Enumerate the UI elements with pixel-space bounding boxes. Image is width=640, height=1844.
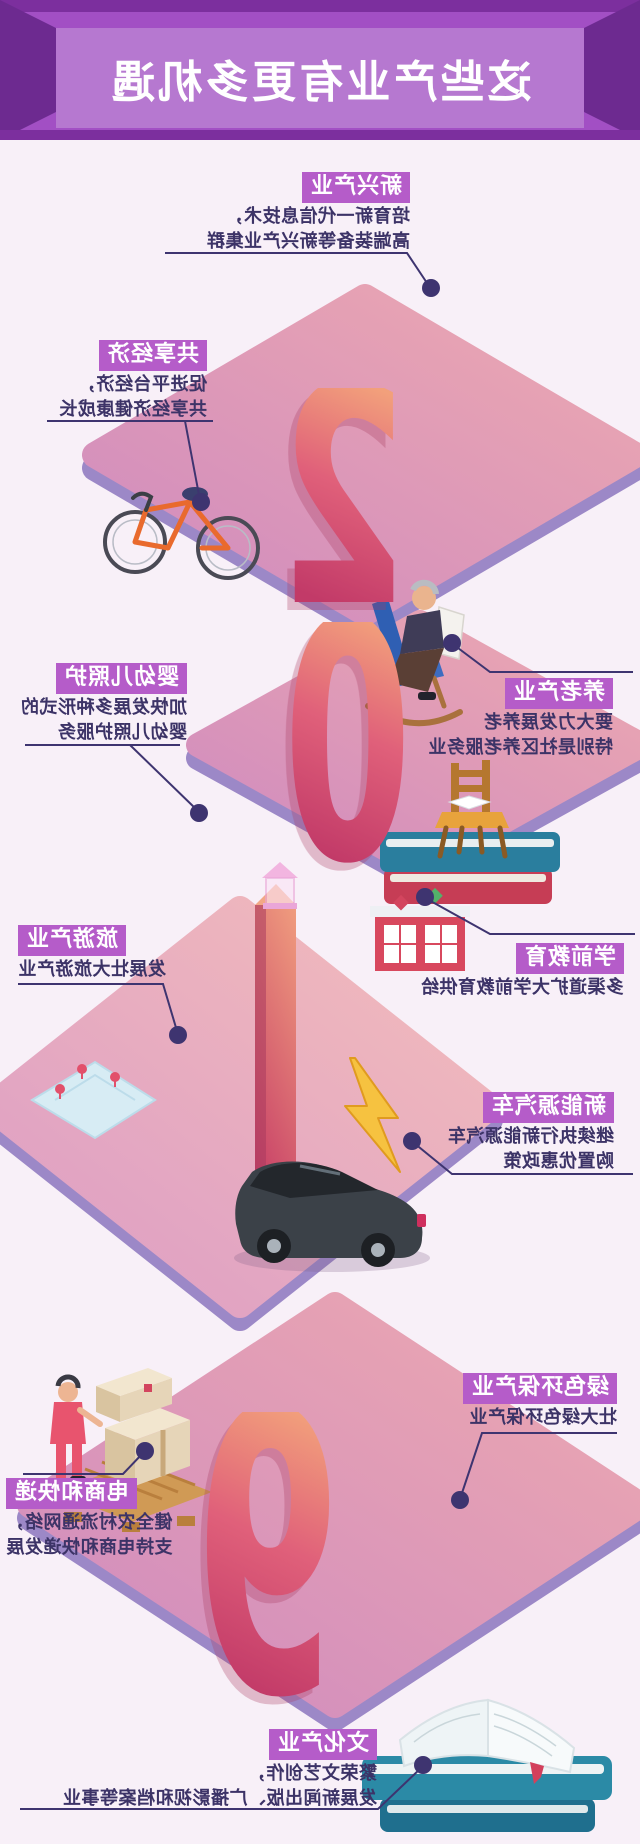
section-text-line: 发展壮大旅游产业 <box>18 959 188 981</box>
section-label: 电商和快递 <box>6 1478 137 1509</box>
section-text-line: 繁荣文艺创作， <box>63 1763 378 1785</box>
header-bottom-strip <box>0 130 640 140</box>
section-culture-industry: 文化产业 繁荣文艺创作， 发展新闻出版、广播影视和档案等事业 <box>63 1729 378 1810</box>
header-banner: 这些产业有更多机遇 <box>0 0 640 140</box>
header-panel: 这些产业有更多机遇 <box>56 28 584 128</box>
open-book-icon <box>362 1700 612 1832</box>
header-left-bevel <box>584 0 640 140</box>
section-text-line: 婴幼儿照护服务 <box>21 722 188 744</box>
section-elderly-care: 养老产业 要大力发展养老 特别是社区养老服务业 <box>428 678 613 759</box>
section-label: 文化产业 <box>269 1729 377 1760</box>
section-text-line: 支持电商和快递发展 <box>6 1537 176 1559</box>
section-label: 共享经济 <box>99 340 207 371</box>
section-text-line: 购置优惠政策 <box>448 1151 615 1173</box>
section-label: 新能源汽车 <box>483 1092 614 1123</box>
section-text-line: 多渠道扩大学前教育供给 <box>421 977 625 999</box>
infographic-canvas: 2 0 9 这些产业有更多机遇 新兴产业 培育新一代信息技术， 高端装备等新兴产… <box>0 0 640 1844</box>
section-preschool-education: 学前教育 多渠道扩大学前教育供给 <box>421 943 625 999</box>
section-label: 旅游产业 <box>18 925 126 956</box>
section-label: 绿色环保产业 <box>463 1373 617 1404</box>
section-label: 婴幼儿照护 <box>56 663 187 694</box>
section-text-line: 共享经济健康成长 <box>59 399 207 421</box>
numeral-9: 9 <box>193 1412 340 1701</box>
section-text-line: 要大力发展养老 <box>428 712 613 734</box>
section-infant-care: 婴幼儿照护 加快发展多种形式的 婴幼儿照护服务 <box>21 663 188 744</box>
section-text-line: 壮大绿色环保产业 <box>463 1407 617 1429</box>
section-text-line: 加快发展多种形式的 <box>21 697 188 719</box>
section-text-line: 健全农村流通网络， <box>6 1512 176 1534</box>
header-right-bevel <box>0 0 56 140</box>
section-ecommerce-express: 电商和快递 健全农村流通网络， 支持电商和快递发展 <box>6 1478 176 1559</box>
section-new-energy-vehicles: 新能源汽车 继续执行新能源汽车 购置优惠政策 <box>448 1092 615 1173</box>
page-title: 这些产业有更多机遇 <box>109 46 532 110</box>
section-text-line: 特别是社区养老服务业 <box>428 737 613 759</box>
section-text-line: 发展新闻出版、广播影视和档案等事业 <box>63 1788 378 1810</box>
section-sharing-economy: 共享经济 促进平台经济， 共享经济健康成长 <box>59 340 207 421</box>
section-green-industry: 绿色环保产业 壮大绿色环保产业 <box>463 1373 617 1429</box>
section-text-line: 高端装备等新兴产业集群 <box>207 231 411 253</box>
header-top-strip <box>0 0 640 12</box>
section-label: 新兴产业 <box>302 172 410 203</box>
section-label: 养老产业 <box>505 678 613 709</box>
section-label: 学前教育 <box>516 943 624 974</box>
section-emerging-industries: 新兴产业 培育新一代信息技术， 高端装备等新兴产业集群 <box>207 172 411 253</box>
section-tourism: 旅游产业 发展壮大旅游产业 <box>18 925 188 981</box>
section-text-line: 促进平台经济， <box>59 374 207 396</box>
numeral-0: 0 <box>283 622 412 866</box>
section-text-line: 培育新一代信息技术， <box>207 206 411 228</box>
section-text-line: 继续执行新能源汽车 <box>448 1126 615 1148</box>
